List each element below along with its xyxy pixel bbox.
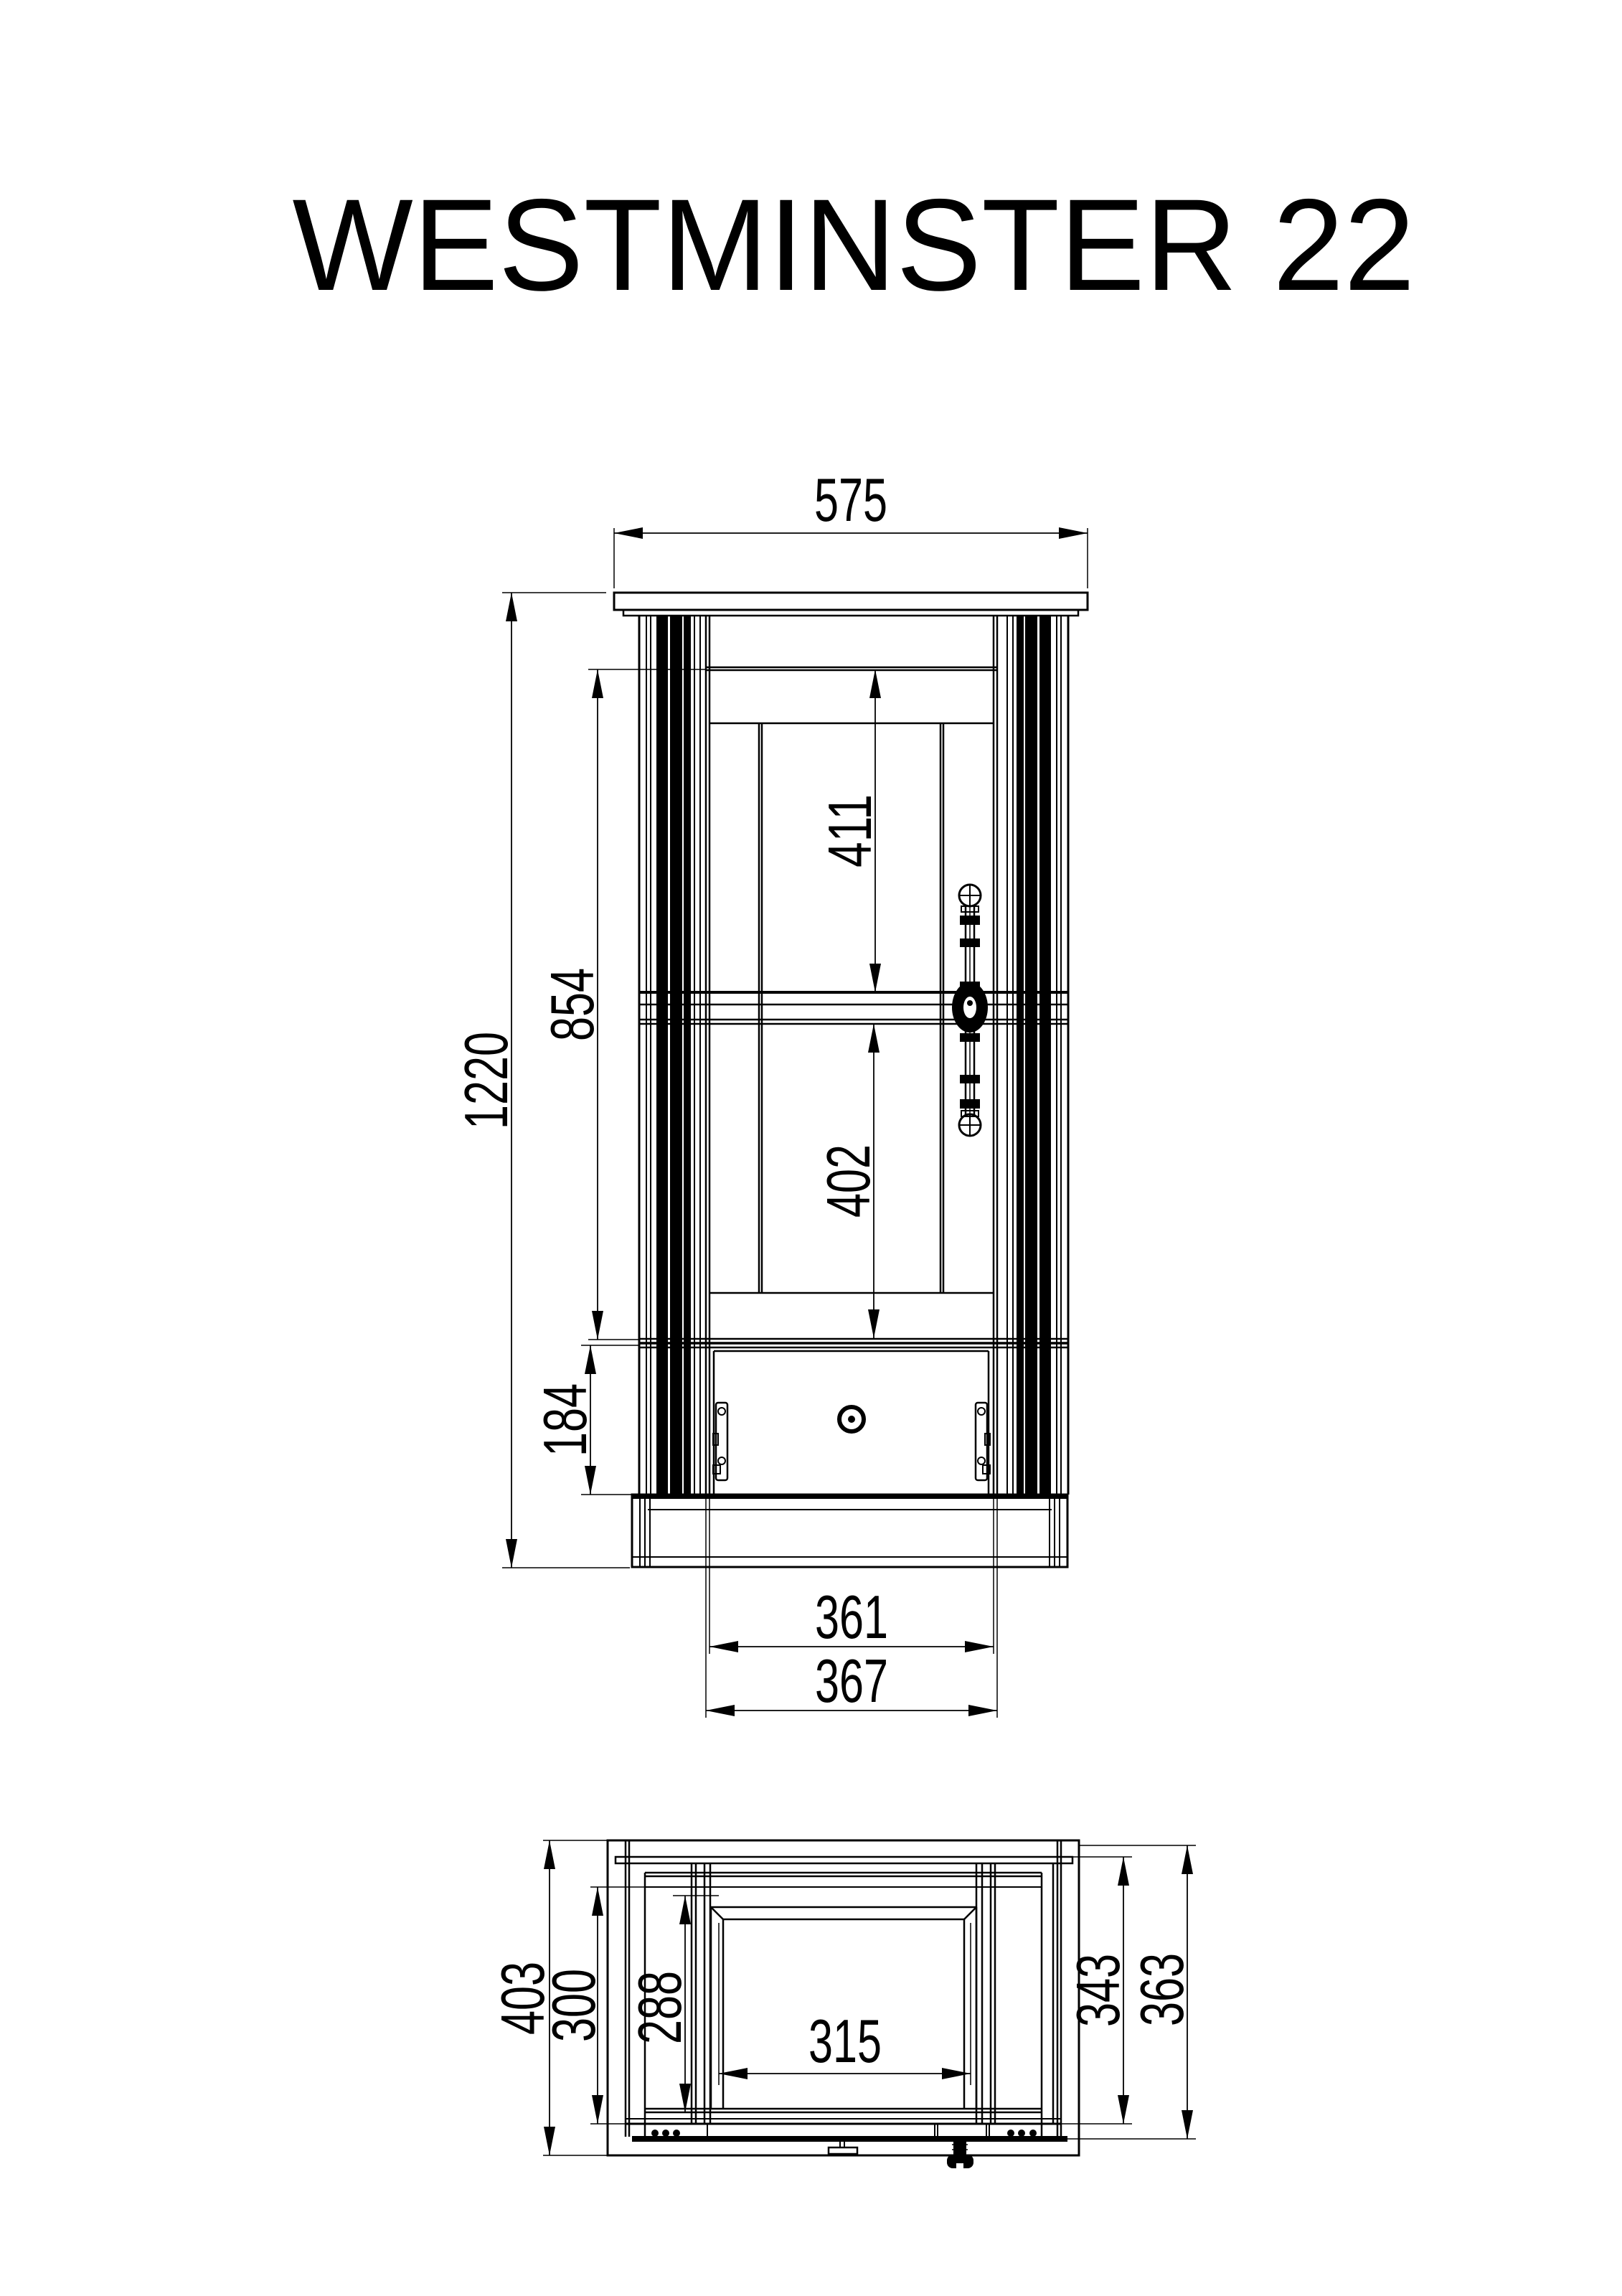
dim-drawer-widths: 361 367 [706,1495,997,1718]
front-view: 575 1220 854 411 [453,466,1088,1718]
dim-label-367: 367 [815,1647,888,1716]
dim-drawer-184: 184 [532,1345,639,1495]
drawing-title: WESTMINSTER 22 [293,171,1415,318]
drawer-bracket-right [976,1403,990,1480]
dim-label-363: 363 [1128,1953,1197,2026]
dim-label-411: 411 [816,794,885,867]
dim-label-343: 343 [1065,1954,1133,2027]
drawer-front [713,1351,990,1495]
top-view: 403 300 288 315 [489,1840,1197,2168]
dim-label-315: 315 [808,2008,882,2076]
technical-drawing: WESTMINSTER 22 [0,0,1622,2296]
pilaster-left [646,616,700,1495]
drawing-sheet: WESTMINSTER 22 [0,0,1622,2296]
pilaster-right [1007,616,1061,1495]
dim-depth-343: 343 [1062,1857,1133,2124]
cabinet-door [639,616,1068,1495]
dim-width-315: 315 [719,1923,971,2085]
dim-upper-411: 411 [816,669,885,992]
dim-label-184: 184 [532,1383,600,1457]
front-body-sides [639,616,1068,1495]
plinth [632,1495,1067,1567]
plan-leveler [829,2142,857,2154]
dim-label-361: 361 [815,1584,888,1652]
dim-label-288: 288 [626,1971,694,2044]
dim-label-402: 402 [815,1144,883,1218]
plan-front-edge [608,2119,1079,2155]
dim-label-854: 854 [539,968,607,1041]
dim-lower-402: 402 [815,1024,883,1338]
dim-label-1220: 1220 [453,1032,521,1129]
door-handle [952,885,988,1136]
drawer-knob [839,1407,864,1431]
dim-label-300: 300 [540,1969,608,2042]
front-crown [614,593,1088,616]
shelf-lines [639,992,1068,1024]
dim-label-575: 575 [814,466,887,535]
drawer-bracket-left [713,1403,727,1480]
dim-width-575: 575 [614,466,1088,588]
